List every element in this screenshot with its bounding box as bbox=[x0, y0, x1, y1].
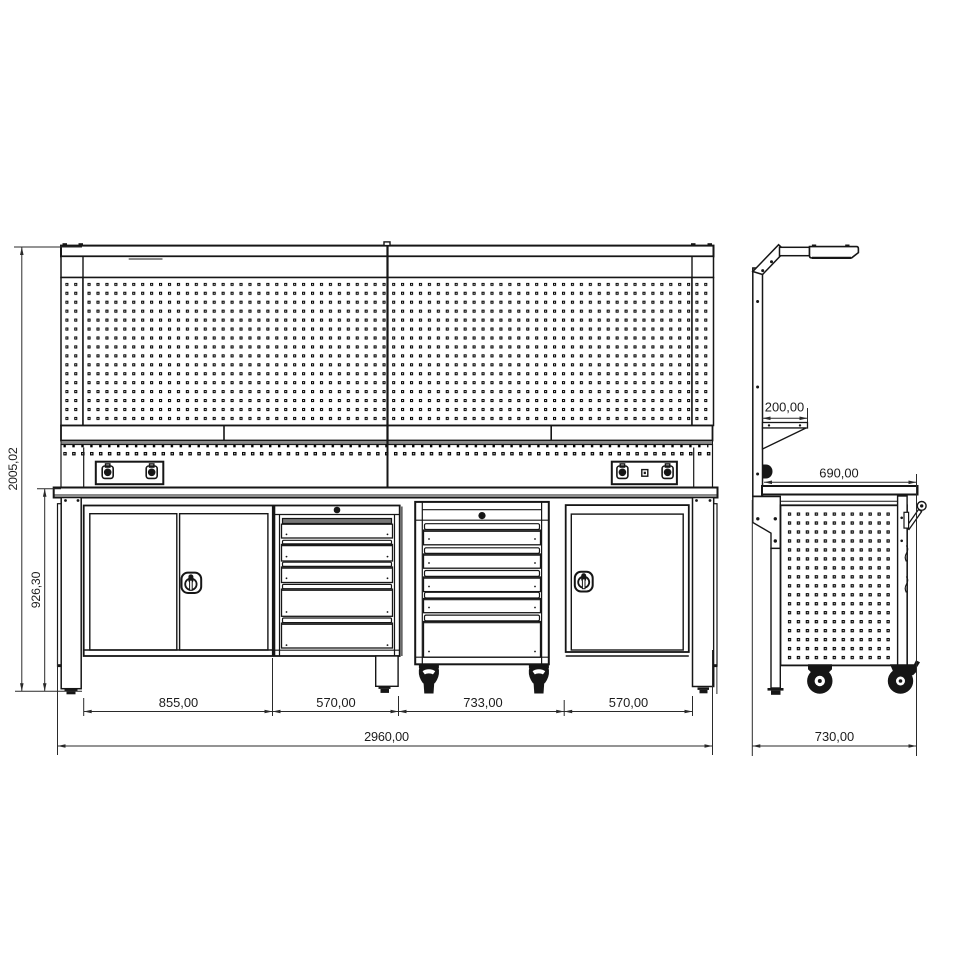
svg-text:200,00: 200,00 bbox=[765, 400, 804, 415]
svg-text:2960,00: 2960,00 bbox=[364, 730, 409, 744]
svg-text:570,00: 570,00 bbox=[609, 695, 648, 710]
svg-text:733,00: 733,00 bbox=[463, 695, 502, 710]
svg-text:926,30: 926,30 bbox=[29, 571, 43, 608]
svg-text:570,00: 570,00 bbox=[316, 695, 355, 710]
svg-text:855,00: 855,00 bbox=[159, 695, 198, 710]
svg-text:690,00: 690,00 bbox=[819, 466, 858, 481]
svg-text:730,00: 730,00 bbox=[815, 729, 854, 744]
svg-text:2005,02: 2005,02 bbox=[6, 447, 20, 490]
